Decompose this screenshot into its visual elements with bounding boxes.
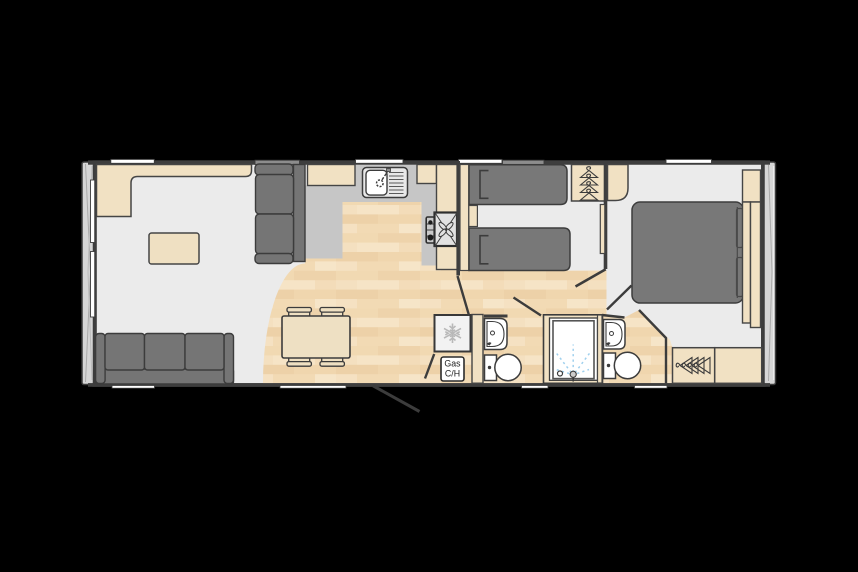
- svg-text:Gas: Gas: [444, 359, 461, 369]
- svg-text:C/H: C/H: [445, 369, 460, 379]
